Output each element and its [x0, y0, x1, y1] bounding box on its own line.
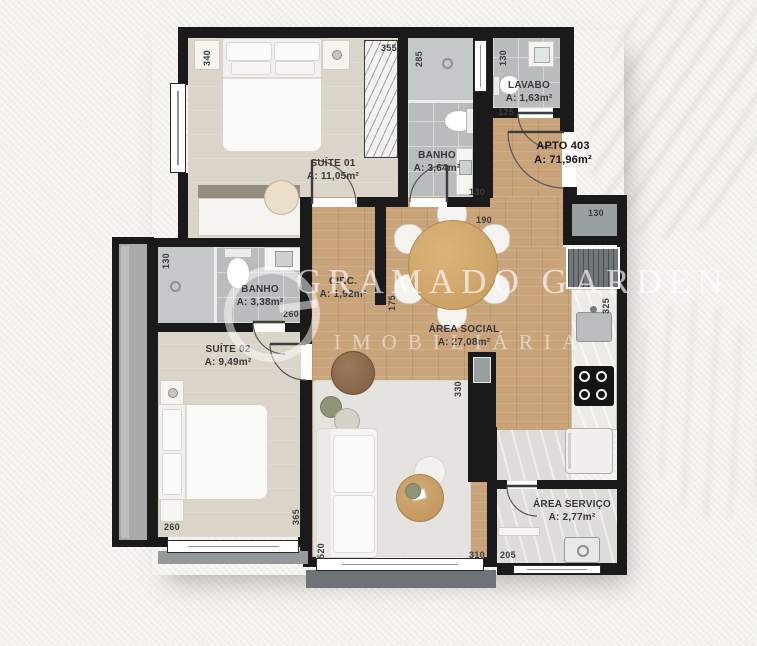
room-label-social: ÁREA SOCIAL A: 27,08m²	[429, 323, 500, 349]
room-name: ÁREA SOCIAL	[429, 323, 500, 336]
wall	[150, 238, 312, 247]
window-sill	[306, 570, 496, 588]
room-label-servico: ÁREA SERVIÇO A: 2,77m²	[533, 498, 611, 524]
pouf-brown	[331, 351, 375, 395]
laundry-shelf	[498, 527, 540, 536]
dining-table	[408, 220, 498, 310]
wall	[300, 380, 312, 557]
wall	[178, 38, 188, 85]
dimension-label: 325	[601, 298, 611, 314]
bed-suite02	[158, 404, 266, 500]
sink	[275, 251, 293, 267]
wall	[487, 480, 507, 489]
apartment-number: APTO 403	[534, 139, 592, 153]
door-opening-banho1	[410, 198, 447, 207]
shower-area	[408, 38, 473, 102]
dimension-label: 130	[588, 208, 604, 218]
sink	[459, 160, 472, 175]
door-opening-servico	[507, 481, 537, 489]
sofa	[316, 428, 378, 558]
nightstand	[160, 498, 184, 522]
window-servico	[513, 565, 601, 574]
shower-head-icon	[442, 58, 453, 69]
door-opening-suite01	[312, 198, 357, 207]
room-name: ÁREA SERVIÇO	[533, 498, 611, 511]
washing-machine	[564, 537, 600, 563]
room-area: A: 11,05m²	[307, 170, 359, 183]
wall	[178, 173, 188, 240]
pillow	[231, 61, 271, 75]
shower-divider	[214, 247, 217, 323]
dimension-label: 175	[387, 295, 397, 311]
shower-divider	[408, 100, 473, 103]
duvet	[185, 405, 267, 499]
wall	[553, 108, 574, 118]
lamp-icon	[332, 50, 342, 60]
dimension-label: 130	[161, 253, 171, 269]
window-suite02	[167, 540, 299, 553]
wall	[447, 197, 490, 207]
wall	[298, 537, 312, 547]
apartment-area: A: 71,96m²	[534, 153, 592, 167]
room-area: A: 1,63m²	[506, 92, 553, 105]
dimension-label: 340	[202, 50, 212, 66]
room-area: A: 27,08m²	[429, 336, 500, 349]
wardrobe	[364, 40, 398, 158]
floor-plan: SUÍTE 01 A: 11,05m² BANHO A: 3,64m² LAVA…	[0, 0, 757, 646]
cooktop	[574, 366, 614, 406]
room-name: LAVABO	[506, 79, 553, 92]
dimension-label: 125	[498, 107, 514, 117]
pillow	[275, 61, 315, 75]
bed-suite01	[222, 38, 322, 150]
dimension-label: 285	[414, 51, 424, 67]
wall	[537, 480, 627, 489]
sofa-cushion	[333, 495, 375, 553]
room-area: A: 9,49m²	[205, 356, 252, 369]
room-area: A: 3,64m²	[414, 162, 461, 175]
room-name: SUÍTE 01	[307, 157, 359, 170]
wall	[375, 207, 386, 305]
lamp-icon	[168, 388, 178, 398]
dimension-label: 130	[469, 187, 485, 197]
room-area: A: 2,77m²	[533, 511, 611, 524]
sofa-cushion	[333, 435, 375, 493]
pillow	[162, 453, 182, 495]
fridge	[565, 428, 613, 474]
dimension-label: 520	[316, 543, 326, 559]
pillow	[162, 409, 182, 451]
dimension-label: 190	[476, 215, 492, 225]
room-name: BANHO	[414, 149, 461, 162]
dimension-label: 310	[469, 550, 485, 560]
room-area: A: 1,92m²	[320, 288, 367, 301]
window-banho1	[474, 40, 487, 92]
duct-shaft	[566, 247, 620, 289]
shower-head-icon	[170, 281, 181, 292]
window-social	[316, 558, 484, 571]
pillow	[226, 42, 272, 61]
kitchen-sink	[576, 312, 612, 342]
dimension-label: 205	[500, 550, 516, 560]
room-label-lavabo: LAVABO A: 1,63m²	[506, 79, 553, 105]
exterior-column	[112, 237, 154, 547]
room-label-circ: CIRC. A: 1,92m²	[320, 275, 367, 301]
washer-door-icon	[577, 545, 589, 557]
room-name: CIRC.	[320, 275, 367, 288]
dimension-label: 130	[498, 50, 508, 66]
floor-kitchen-corridor	[497, 430, 571, 487]
pillow	[274, 42, 320, 61]
fridge-handle	[568, 433, 571, 469]
room-label-banho1: BANHO A: 3,64m²	[414, 149, 461, 175]
sink	[534, 47, 550, 63]
plant-icon	[405, 483, 421, 499]
wall	[398, 38, 408, 207]
pouf-chair	[264, 180, 299, 215]
duvet	[223, 77, 321, 151]
sofa-back	[317, 429, 331, 557]
shaft	[473, 357, 491, 383]
faucet-icon	[590, 306, 597, 313]
window-suite01	[170, 83, 186, 173]
apartment-label: APTO 403 A: 71,96m²	[534, 139, 592, 167]
column-inner	[121, 246, 129, 538]
dimension-label: 365	[291, 509, 301, 525]
wall	[178, 27, 570, 38]
dimension-label: 260	[164, 522, 180, 532]
palm-shadow	[619, 289, 757, 531]
dimension-label: 355	[381, 43, 397, 53]
door-opening-lavabo	[518, 109, 553, 118]
room-label-suite01: SUÍTE 01 A: 11,05m²	[307, 157, 359, 183]
dimension-label: 330	[453, 381, 463, 397]
